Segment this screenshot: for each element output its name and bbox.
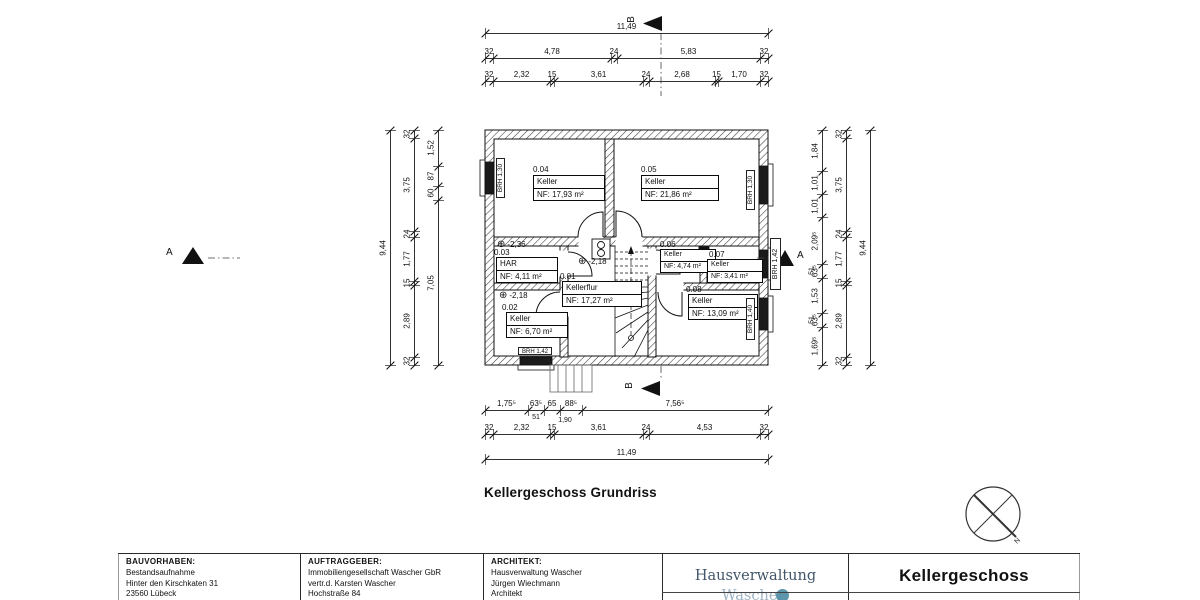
dimension-line	[390, 130, 391, 365]
title-block: BAUVORHABEN: Bestandsaufnahme Hinter den…	[118, 553, 1080, 600]
dimension-label: 87	[427, 172, 436, 181]
dimension-label: 2,89	[403, 313, 412, 329]
titleblock-line: Architekt	[491, 589, 655, 600]
titleblock-sheet-title-cell: Kellergeschoss	[848, 554, 1080, 600]
room-label-box: Keller NF: 21,86 m²	[641, 175, 719, 201]
logo-text-primary: Hausverwaltung	[695, 568, 816, 584]
dimension-label: 1,53	[811, 288, 820, 304]
logo-circle-icon	[776, 589, 789, 600]
dimension-label: 15	[548, 423, 557, 432]
titleblock-line: Jürgen Wiechmann	[491, 579, 655, 590]
room-area: NF: 21,86 m²	[642, 189, 718, 201]
dimension-line	[870, 130, 871, 365]
north-arrow-icon: N	[966, 487, 1022, 545]
room-area: NF: 17,93 m²	[534, 189, 604, 201]
titleblock-label: ARCHITEKT:	[491, 557, 655, 568]
window-sill-label: BRH 1,42	[770, 238, 781, 290]
dimension-label: 32	[835, 357, 844, 366]
dimension-label: 32	[485, 70, 494, 79]
room-name: Keller	[642, 176, 718, 189]
level-marker: ⊕-2,36	[497, 239, 526, 250]
room-area: NF: 4,11 m²	[497, 271, 557, 283]
dimension-label: 7,05	[427, 275, 436, 291]
dimension-label: 3,75	[835, 177, 844, 193]
plan-caption: Kellergeschoss Grundriss	[484, 485, 657, 500]
dimension-line	[485, 459, 768, 460]
room-area: NF: 3,41 m²	[708, 272, 762, 283]
window-sill-label: BRH 1,30	[746, 170, 755, 210]
dimension-label: 24	[403, 230, 412, 239]
dimension-label: 1,77	[835, 251, 844, 267]
titleblock-line: Hochstraße 84	[308, 589, 476, 600]
section-letter-a-right: A	[797, 250, 804, 261]
dimension-label: 5,83	[681, 47, 697, 56]
room-number: 0.07	[709, 250, 725, 259]
titleblock-line: Hausverwaltung Wascher	[491, 568, 655, 579]
room-name: Keller	[708, 260, 762, 272]
dimension-label: 3,75	[403, 177, 412, 193]
sheet-title: Kellergeschoss	[856, 565, 1072, 588]
dimension-label: 1,84	[811, 143, 820, 159]
dimension-label: 11,49	[617, 22, 636, 31]
dimension-label: 1,77	[403, 251, 412, 267]
titleblock-label: AUFTRAGGEBER:	[308, 557, 476, 568]
dimension-label: 1,70	[731, 70, 747, 79]
window-sill-label: BRH 1,40	[746, 298, 755, 340]
dimension-label: 32	[760, 70, 769, 79]
dimension-label: 11,49	[617, 448, 636, 457]
titleblock-line: Hinter den Kirschkaten 31	[126, 579, 293, 590]
dimension-sub-label: 1,90	[558, 417, 572, 424]
dimension-label: 7,56⁵	[666, 399, 685, 408]
dimension-label: 15	[548, 70, 557, 79]
dimension-line	[485, 434, 768, 435]
titleblock-line: 23560 Lübeck	[126, 589, 293, 600]
room-label-box: Keller NF: 17,93 m²	[533, 175, 605, 201]
room-number: 0.06	[660, 240, 676, 249]
dimension-label: 2,89	[835, 313, 844, 329]
dimension-label: 15	[712, 70, 721, 79]
room-number: 0.01	[560, 272, 576, 281]
room-number: 0.08	[686, 285, 702, 294]
room-label-box: Kellerflur NF: 17,27 m²	[562, 281, 642, 307]
titleblock-auftraggeber: AUFTRAGGEBER: Immobiliengesellschaft Was…	[300, 554, 483, 600]
dimension-label: 24	[835, 230, 844, 239]
dimension-label: 32	[760, 47, 769, 56]
dimension-label: 65	[548, 399, 557, 408]
level-symbol-icon: ⊕	[578, 256, 586, 267]
section-letter-a-left: A	[166, 247, 173, 258]
room-number: 0.05	[641, 165, 657, 174]
dimension-label: 9,44	[379, 240, 388, 256]
titleblock-line: Immobiliengesellschaft Wascher GbR	[308, 568, 476, 579]
level-symbol-icon: ⊕	[499, 290, 507, 301]
dimension-label: 15	[835, 279, 844, 288]
sheet: N 0.04 Keller NF: 17,93 m² 0.05 Keller N…	[0, 0, 1200, 600]
room-label-box: Keller NF: 3,41 m²	[707, 259, 763, 283]
room-name: Keller	[507, 313, 567, 326]
north-label: N	[1013, 537, 1022, 546]
room-area: NF: 6,70 m²	[507, 326, 567, 338]
room-number: 0.02	[502, 303, 518, 312]
dimension-label: 24	[642, 70, 651, 79]
dimension-label: 3,61	[591, 70, 607, 79]
titleblock-line: vertr.d. Karsten Wascher	[308, 579, 476, 590]
dimension-label: 88⁵	[565, 399, 577, 408]
level-marker: ⊕-2,18	[578, 256, 607, 267]
room-name: HAR	[497, 258, 557, 271]
titleblock-architekt: ARCHITEKT: Hausverwaltung Wascher Jürgen…	[483, 554, 662, 600]
dimension-label: 4,53	[697, 423, 713, 432]
dimension-label: 2,32	[514, 423, 530, 432]
dimension-label: 15	[403, 279, 412, 288]
dimension-label: 2,68	[674, 70, 690, 79]
room-area: NF: 17,27 m²	[563, 295, 641, 307]
dimension-label: 1,01	[811, 198, 820, 214]
dimension-label: 1,75⁵	[497, 399, 516, 408]
section-letter-b-bottom: B	[624, 382, 635, 389]
room-label-box: HAR NF: 4,11 m²	[496, 257, 558, 283]
titleblock-bauvorhaben: BAUVORHABEN: Bestandsaufnahme Hinter den…	[118, 554, 300, 600]
dimension-line	[485, 33, 768, 34]
dimension-label: 9,44	[859, 240, 868, 256]
dimension-label: 32	[760, 423, 769, 432]
dimension-label: 63⁵	[530, 399, 542, 408]
dimension-label: 3,61	[591, 423, 607, 432]
dimension-label: 1,52	[427, 140, 436, 156]
logo-text-secondary: Wascher	[722, 588, 785, 600]
room-name: Keller	[534, 176, 604, 189]
exterior-stair	[550, 365, 592, 392]
dimension-label: 63⁵	[811, 314, 820, 326]
dimension-label: 60	[427, 189, 436, 198]
dimension-label: 1,01	[811, 175, 820, 191]
dimension-label: 32	[403, 130, 412, 139]
window-sill-label: BRH 1,42	[518, 347, 552, 355]
dimension-line	[822, 130, 823, 365]
room-number: 0.04	[533, 165, 549, 174]
dimension-label: 2,32	[514, 70, 530, 79]
level-marker: ⊕-2,18	[499, 290, 528, 301]
company-logo: Hausverwaltung Wascher	[662, 554, 848, 600]
dimension-label: 4,78	[544, 47, 560, 56]
dimension-line	[846, 130, 847, 365]
dimension-label: 2,09⁵	[811, 231, 820, 250]
dimension-label: 24	[610, 47, 619, 56]
dimension-label: 63⁵	[811, 265, 820, 277]
dimension-label: 32	[835, 130, 844, 139]
room-label-box: Keller NF: 6,70 m²	[506, 312, 568, 338]
dimension-label: 24	[642, 423, 651, 432]
dimension-line	[414, 130, 415, 365]
dimension-line	[485, 81, 768, 82]
titleblock-label: BAUVORHABEN:	[126, 557, 293, 568]
dimension-label: 1,69⁵	[811, 337, 820, 356]
dimension-label: 32	[485, 423, 494, 432]
dimension-line	[485, 58, 768, 59]
dimension-label: 32	[403, 357, 412, 366]
dimension-sub-label: 51	[532, 414, 540, 421]
titleblock-line: Bestandsaufnahme	[126, 568, 293, 579]
dimension-label: 32	[485, 47, 494, 56]
titleblock-divider	[662, 592, 1080, 593]
window-sill-label: BRH 1,30	[496, 158, 505, 198]
level-symbol-icon: ⊕	[497, 239, 505, 250]
room-name: Kellerflur	[563, 282, 641, 295]
